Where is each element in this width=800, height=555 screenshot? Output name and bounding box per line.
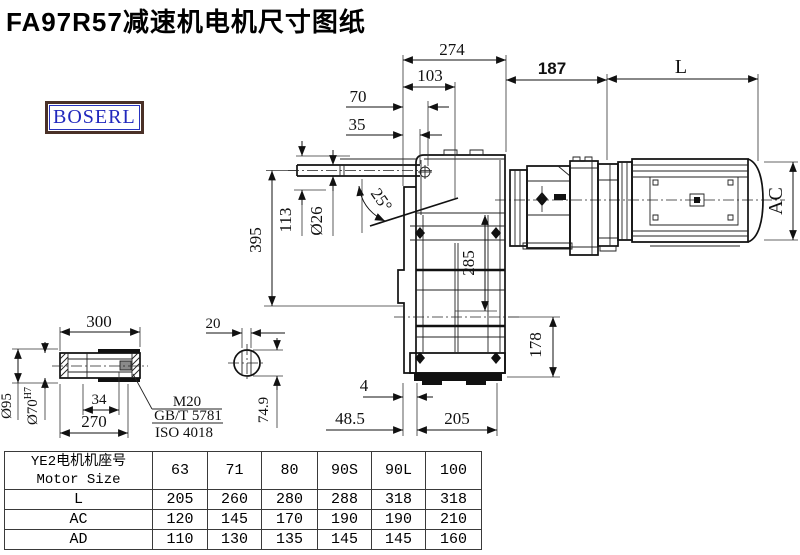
- table-cell: 145: [372, 530, 426, 550]
- dim-395-label: 395: [246, 227, 265, 253]
- table-cell: 135: [262, 530, 318, 550]
- table-header-cn: YE2电机机座号: [5, 453, 152, 471]
- side-view-shape: [653, 215, 658, 220]
- side-view-shape: [598, 164, 618, 246]
- dim-dia70-tolerance: H7: [23, 387, 34, 399]
- motor-size-table: YE2电机机座号 Motor Size 63 71 80 90S 90L 100…: [4, 451, 482, 550]
- dim-20-label: 20: [206, 316, 221, 332]
- dim-dia70-value: Ø70: [25, 399, 41, 425]
- size-column-header: 90S: [318, 452, 372, 490]
- side-view-shape: [527, 166, 570, 248]
- size-column-header: 63: [153, 452, 208, 490]
- table-cell: 190: [372, 510, 426, 530]
- hollow-shaft-detail-shape: [98, 349, 140, 353]
- hollow-shaft-detail: [52, 349, 148, 382]
- table-cell: 190: [318, 510, 372, 530]
- motor-size-table-grid: YE2电机机座号 Motor Size 63 71 80 90S 90L 100…: [4, 451, 482, 550]
- table-cell: 130: [208, 530, 262, 550]
- table-cell: 110: [153, 530, 208, 550]
- dim-35-label: 35: [349, 115, 366, 134]
- front-view-shape: [410, 353, 505, 373]
- table-cell: 210: [426, 510, 482, 530]
- row-label: AC: [5, 510, 153, 530]
- table-cell: 318: [372, 490, 426, 510]
- front-view-shape: [422, 381, 442, 385]
- size-column-header: 90L: [372, 452, 426, 490]
- dim-4-label: 4: [360, 376, 369, 395]
- table-row-L: L 205 260 280 288 318 318: [5, 490, 482, 510]
- side-view-shape: [558, 166, 570, 176]
- side-view-shape: [554, 194, 566, 200]
- dim-113-label: 113: [276, 208, 295, 233]
- row-label: AD: [5, 530, 153, 550]
- size-column-header: 71: [208, 452, 262, 490]
- dim-178-label: 178: [526, 332, 545, 358]
- row-label: L: [5, 490, 153, 510]
- dim-angle25-label: 25°: [367, 185, 396, 215]
- side-view-shape: [728, 180, 733, 185]
- dimension-annotations-shape: [133, 374, 152, 409]
- table-cell: 170: [262, 510, 318, 530]
- table-cell: 288: [318, 490, 372, 510]
- table-cell: 260: [208, 490, 262, 510]
- side-view-shape: [748, 159, 763, 242]
- dim-L-label: L: [675, 56, 687, 78]
- dim-74-9-label: 74.9: [256, 397, 272, 423]
- side-view-shape: [694, 197, 700, 203]
- table-header-row: YE2电机机座号 Motor Size 63 71 80 90S 90L 100: [5, 452, 482, 490]
- bolt-marker: [491, 227, 501, 239]
- dim-dia95-label: Ø95: [0, 393, 15, 419]
- front-view: [288, 150, 522, 385]
- side-view: [495, 157, 785, 255]
- side-view-shape: [728, 215, 733, 220]
- table-cell: 120: [153, 510, 208, 530]
- tapped-hole: [120, 361, 131, 370]
- dim-274-label: 274: [439, 40, 465, 59]
- dim-AC-label: AC: [765, 187, 787, 215]
- standard-iso-label: ISO 4018: [155, 425, 213, 441]
- dim-270-label: 270: [81, 412, 107, 431]
- table-cell: 145: [318, 530, 372, 550]
- table-header-en: Motor Size: [5, 471, 152, 489]
- table-cell: 145: [208, 510, 262, 530]
- table-cell: 280: [262, 490, 318, 510]
- size-column-header: 100: [426, 452, 482, 490]
- table-row-AC: AC 120 145 170 190 190 210: [5, 510, 482, 530]
- dim-300-label: 300: [86, 312, 112, 331]
- side-view-shape: [570, 161, 598, 255]
- dim-103-label: 103: [417, 66, 443, 85]
- hollow-shaft-detail-shape: [132, 353, 140, 377]
- size-column-header: 80: [262, 452, 318, 490]
- table-cell: 160: [426, 530, 482, 550]
- hollow-shaft-detail-shape: [60, 353, 68, 377]
- side-view-shape: [510, 170, 527, 246]
- side-view-shape: [618, 162, 632, 240]
- dim-205-label: 205: [444, 409, 470, 428]
- table-cell: 205: [153, 490, 208, 510]
- side-view-shape: [653, 180, 658, 185]
- dim-dia70-label: Ø70H7: [23, 387, 41, 425]
- dim-70-label: 70: [350, 87, 367, 106]
- table-row-AD: AD 110 130 135 145 145 160: [5, 530, 482, 550]
- table-cell: 318: [426, 490, 482, 510]
- page: { "page": { "title": "FA97R57减速机电机尺寸图纸",…: [0, 0, 800, 555]
- dim-34-label: 34: [92, 392, 108, 408]
- table-header-motor-size: YE2电机机座号 Motor Size: [5, 452, 153, 490]
- dim-48-5-label: 48.5: [335, 409, 365, 428]
- front-view-shape: [466, 381, 486, 385]
- dim-285-label: 285: [459, 250, 478, 276]
- standard-gb-label: GB/T 5781: [154, 408, 222, 424]
- dim-187-label: 187: [538, 59, 566, 78]
- front-view-shape: [414, 373, 502, 381]
- dim-dia26-label: Ø26: [307, 206, 326, 235]
